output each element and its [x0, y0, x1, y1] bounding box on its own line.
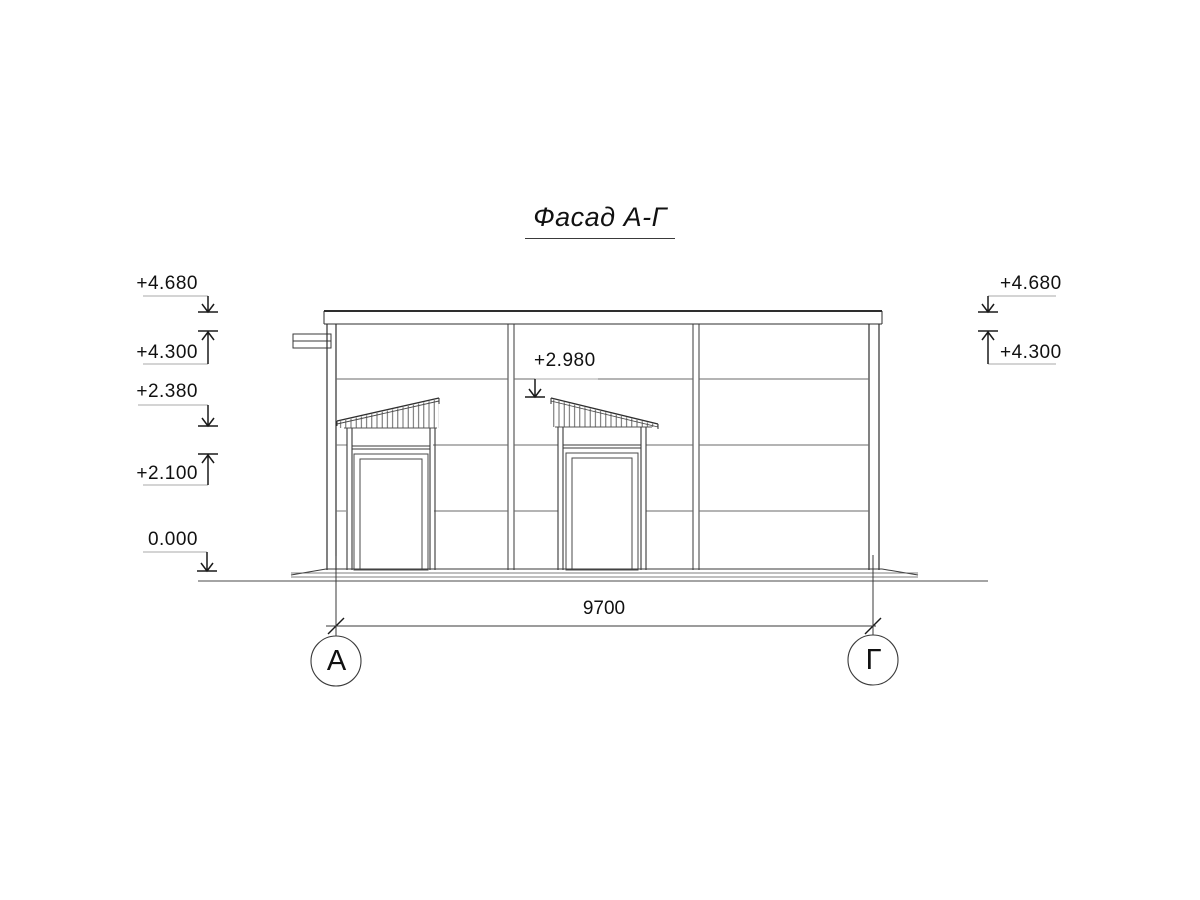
drawing-canvas	[0, 0, 1200, 900]
left-door-canopy	[337, 398, 439, 428]
parapet-band	[324, 311, 882, 324]
drawing-title-text: Фасад А-Г	[525, 202, 675, 239]
right-door	[558, 427, 646, 570]
right-door-canopy	[551, 398, 658, 429]
left-door	[347, 428, 435, 570]
dimension-line	[326, 618, 881, 634]
scupper-outlet	[293, 334, 331, 348]
drawing-title: Фасад А-Г	[420, 202, 780, 239]
axis-label-g: Г	[848, 643, 899, 677]
axis-label-a: А	[311, 644, 362, 678]
elevation-mark-left-2100: +2.100	[118, 463, 198, 485]
elevation-mark-right-4680: +4.680	[1000, 273, 1090, 295]
dimension-value: 9700	[554, 598, 654, 620]
elevation-mark-left-2380: +2.380	[118, 381, 198, 403]
elevation-mark-left-0000: 0.000	[118, 529, 198, 551]
elevation-mark-left-4680: +4.680	[118, 273, 198, 295]
facade-drawing-sheet: Фасад А-Г +4.680 +4.300 +2.380 +2.100 0.…	[0, 0, 1200, 900]
elevation-mark-canopy-2980: +2.980	[534, 350, 634, 372]
elevation-mark-left-4300: +4.300	[118, 342, 198, 364]
elevation-mark-right-4300: +4.300	[1000, 342, 1090, 364]
